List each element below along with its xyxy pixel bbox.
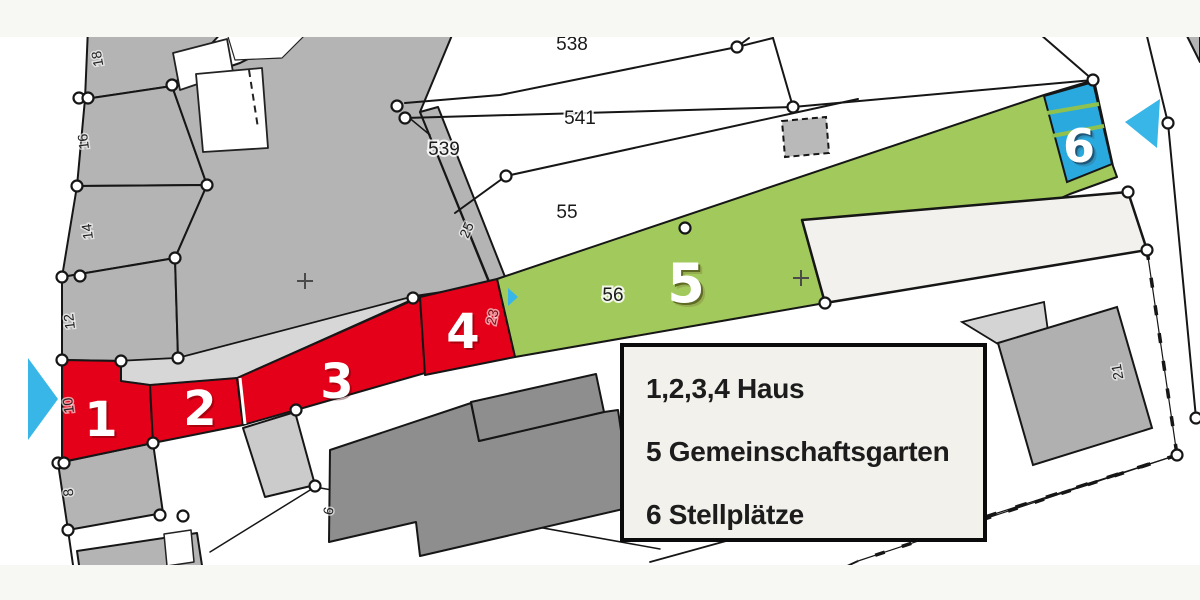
parcel-label-56: 56 bbox=[602, 285, 623, 306]
parcel-label-12: 12 bbox=[60, 313, 78, 331]
top-band bbox=[0, 0, 1200, 37]
site-plan: 538 541 539 55 56 18 16 14 12 10 8 25 23… bbox=[0, 0, 1200, 600]
parcel-label-55: 55 bbox=[556, 202, 577, 223]
parcel-label-21: 21 bbox=[1108, 363, 1126, 381]
dashed-square bbox=[782, 117, 829, 157]
parcel-label-14: 14 bbox=[78, 223, 96, 241]
legend-entry-haus: 1,2,3,4 Haus bbox=[646, 373, 804, 404]
parcel-label-16: 16 bbox=[74, 133, 92, 151]
white-building-b bbox=[196, 68, 268, 152]
legend-entry-stellplaetze: 6 Stellplätze bbox=[646, 499, 804, 530]
zone-number-3: 3 bbox=[320, 354, 353, 410]
legend-entry-garten: 5 Gemeinschaftsgarten bbox=[646, 436, 949, 467]
bottom-band bbox=[0, 565, 1200, 600]
zone-number-1: 1 bbox=[84, 392, 117, 448]
parcel-label-18: 18 bbox=[88, 50, 106, 68]
zone-number-5: 5 bbox=[667, 252, 705, 315]
zone-number-4: 4 bbox=[446, 304, 479, 360]
parcel-label-539: 539 bbox=[428, 139, 460, 160]
site-plan-canvas: 538 541 539 55 56 18 16 14 12 10 8 25 23… bbox=[0, 0, 1200, 600]
legend: 1,2,3,4 Haus 5 Gemeinschaftsgarten 6 Ste… bbox=[622, 345, 985, 540]
parcel-label-538: 538 bbox=[556, 34, 588, 55]
parcel-label-541: 541 bbox=[564, 108, 596, 129]
white-building-bottomleft bbox=[164, 530, 194, 566]
parcel-label-10: 10 bbox=[59, 397, 77, 415]
zone-number-6: 6 bbox=[1063, 119, 1095, 173]
zone-number-2: 2 bbox=[183, 381, 216, 437]
